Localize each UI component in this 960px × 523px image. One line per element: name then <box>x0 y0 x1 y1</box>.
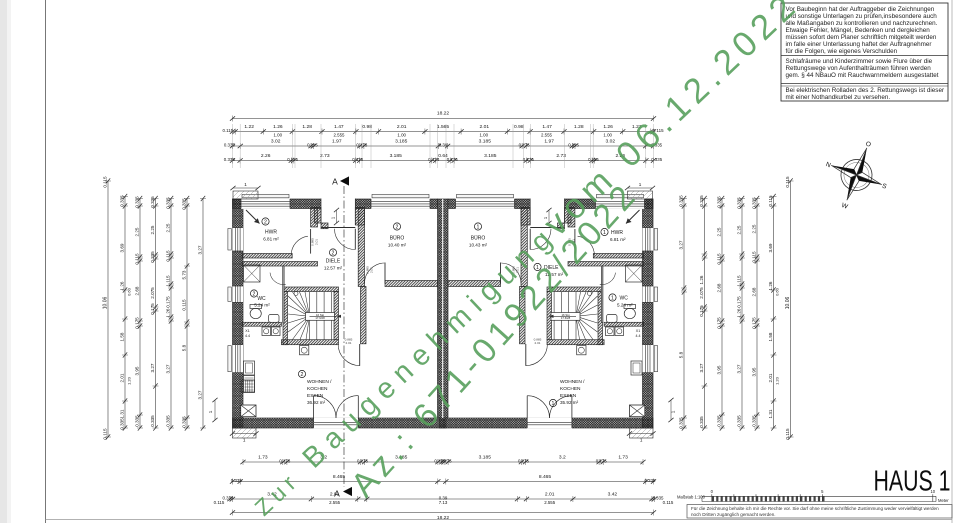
svg-text:3.27: 3.27 <box>699 363 704 372</box>
svg-text:2.25: 2.25 <box>135 227 140 236</box>
svg-text:0.115: 0.115 <box>222 128 233 133</box>
svg-text:0.115: 0.115 <box>785 428 790 440</box>
svg-text:2.075: 2.075 <box>150 287 155 299</box>
svg-text:3.185: 3.185 <box>395 139 408 145</box>
svg-text:WOHNEN /: WOHNEN / <box>560 379 585 385</box>
svg-text:8.465: 8.465 <box>539 474 552 480</box>
svg-text:3.185: 3.185 <box>484 153 497 159</box>
svg-text:2.075: 2.075 <box>699 287 704 299</box>
svg-text:HWR: HWR <box>265 230 277 236</box>
svg-text:1: 1 <box>244 182 247 187</box>
svg-text:2.01: 2.01 <box>768 373 773 382</box>
svg-text:2.01: 2.01 <box>369 267 373 273</box>
svg-text:0.60: 0.60 <box>775 287 780 296</box>
svg-text:17.6/28: 17.6/28 <box>561 316 571 320</box>
svg-text:1.26: 1.26 <box>166 308 171 317</box>
svg-text:0.115: 0.115 <box>307 143 318 148</box>
svg-text:0.98: 0.98 <box>362 124 372 130</box>
svg-text:0.175: 0.175 <box>447 157 459 162</box>
svg-text:0.335: 0.335 <box>699 195 704 207</box>
svg-text:1.58: 1.58 <box>768 332 773 341</box>
svg-text:1: 1 <box>611 296 614 302</box>
svg-text:2: 2 <box>396 225 399 231</box>
svg-text:3.95: 3.95 <box>752 367 757 376</box>
svg-text:1.97: 1.97 <box>332 139 342 145</box>
svg-text:0.335: 0.335 <box>182 416 187 428</box>
svg-text:3.95: 3.95 <box>135 366 140 375</box>
svg-text:2.555: 2.555 <box>329 500 341 505</box>
svg-text:35.92 m²: 35.92 m² <box>560 400 579 405</box>
svg-text:X1: X1 <box>245 329 249 333</box>
svg-text:0.335: 0.335 <box>752 415 757 427</box>
svg-text:4.4: 4.4 <box>636 334 641 338</box>
svg-text:3.185: 3.185 <box>390 153 403 159</box>
svg-text:1.22: 1.22 <box>244 124 254 130</box>
svg-text:2.555: 2.555 <box>541 133 553 138</box>
svg-text:2.01: 2.01 <box>545 492 555 498</box>
svg-text:0.335: 0.335 <box>224 157 236 162</box>
svg-text:0.335: 0.335 <box>231 478 243 483</box>
svg-text:Schlafräume und Kinderzimmer s: Schlafräume und Kinderzimmer sowie Flure… <box>786 58 933 65</box>
svg-text:0.335: 0.335 <box>166 197 171 209</box>
svg-text:5.8: 5.8 <box>182 344 187 351</box>
svg-text:0.175: 0.175 <box>166 296 171 308</box>
svg-text:10.43 m²: 10.43 m² <box>469 243 488 248</box>
svg-text:1.26: 1.26 <box>699 275 704 284</box>
svg-text:4.4: 4.4 <box>245 334 250 338</box>
svg-text:0.175: 0.175 <box>441 459 453 464</box>
svg-text:5.8: 5.8 <box>679 351 684 358</box>
svg-text:2.25: 2.25 <box>150 225 155 234</box>
svg-text:1.26: 1.26 <box>120 281 125 290</box>
svg-text:BÜRO: BÜRO <box>390 235 405 242</box>
svg-text:2.73: 2.73 <box>556 153 566 159</box>
svg-text:3.27: 3.27 <box>166 364 171 373</box>
svg-text:36.92 m²: 36.92 m² <box>307 400 326 405</box>
svg-text:0.115: 0.115 <box>182 299 187 311</box>
svg-text:Meter: Meter <box>938 498 949 503</box>
svg-text:A: A <box>332 177 338 187</box>
svg-text:0.335: 0.335 <box>150 196 155 208</box>
svg-text:0.175: 0.175 <box>596 459 608 464</box>
svg-text:1: 1 <box>552 401 555 407</box>
svg-text:0.175: 0.175 <box>523 157 535 162</box>
svg-text:müssen sofort dem Planer schri: müssen sofort dem Planer schriftlich mit… <box>786 34 937 41</box>
svg-text:HAUS 1: HAUS 1 <box>874 465 951 497</box>
svg-text:0.175: 0.175 <box>699 305 704 317</box>
svg-text:2.25: 2.25 <box>752 224 757 233</box>
svg-text:0.175: 0.175 <box>279 459 291 464</box>
svg-text:2.01: 2.01 <box>397 124 407 130</box>
svg-text:1.26: 1.26 <box>768 281 773 290</box>
svg-text:0.335: 0.335 <box>737 415 742 427</box>
svg-text:1: 1 <box>639 182 642 187</box>
svg-text:0.335: 0.335 <box>120 418 125 430</box>
svg-text:2: 2 <box>253 292 256 298</box>
svg-text:0.335: 0.335 <box>150 251 155 263</box>
svg-text:2.73: 2.73 <box>320 153 330 159</box>
svg-text:0.335: 0.335 <box>717 196 722 208</box>
svg-text:0.335: 0.335 <box>679 417 684 429</box>
svg-text:1: 1 <box>243 438 246 443</box>
svg-text:0.175: 0.175 <box>717 317 722 329</box>
svg-text:1.97: 1.97 <box>544 139 554 145</box>
svg-text:1.58: 1.58 <box>120 332 125 341</box>
svg-text:2.555: 2.555 <box>544 500 556 505</box>
svg-text:WOHNEN /: WOHNEN / <box>307 379 332 385</box>
svg-text:2.555: 2.555 <box>334 133 346 138</box>
svg-text:3.27: 3.27 <box>737 364 742 373</box>
svg-text:BÜRO: BÜRO <box>471 235 486 242</box>
svg-text:0.335: 0.335 <box>224 143 236 148</box>
svg-text:5.73: 5.73 <box>182 270 187 279</box>
svg-text:DIELE: DIELE <box>326 259 341 265</box>
svg-text:1.73: 1.73 <box>258 455 268 461</box>
svg-text:0.115: 0.115 <box>287 157 298 162</box>
svg-text:0.115: 0.115 <box>785 176 790 188</box>
svg-text:1.47: 1.47 <box>334 124 344 130</box>
svg-text:Maßstab 1:100: Maßstab 1:100 <box>677 495 706 500</box>
svg-text:2: 2 <box>332 251 335 257</box>
svg-text:2.01: 2.01 <box>515 267 519 273</box>
svg-text:3.27: 3.27 <box>679 240 684 249</box>
svg-text:2.01: 2.01 <box>345 341 351 345</box>
svg-text:2.01: 2.01 <box>480 124 490 130</box>
svg-text:10.06: 10.06 <box>103 297 109 310</box>
svg-text:10.40 m²: 10.40 m² <box>388 243 407 248</box>
svg-text:18.22: 18.22 <box>437 515 450 521</box>
svg-text:gem. § 44 NBauO mit Rauchwarnm: gem. § 44 NBauO mit Rauchwarnmeldern aus… <box>786 72 939 79</box>
svg-text:1.31: 1.31 <box>768 409 773 418</box>
svg-text:1.26: 1.26 <box>737 308 742 317</box>
svg-text:0.335: 0.335 <box>150 415 155 427</box>
svg-text:KOCHEN: KOCHEN <box>307 386 328 392</box>
svg-text:1.00: 1.00 <box>480 133 489 138</box>
svg-text:0.175: 0.175 <box>135 317 140 329</box>
svg-text:18.22: 18.22 <box>437 111 450 117</box>
svg-text:0.115: 0.115 <box>768 195 773 207</box>
svg-text:0.115: 0.115 <box>166 250 171 262</box>
svg-text:1.00: 1.00 <box>603 133 612 138</box>
svg-text:7.13: 7.13 <box>439 500 448 505</box>
svg-text:0.335: 0.335 <box>752 197 757 209</box>
svg-text:3.42: 3.42 <box>608 492 618 498</box>
svg-text:0.60: 0.60 <box>127 287 132 296</box>
svg-text:1.28: 1.28 <box>302 124 312 130</box>
svg-text:5.24 m²: 5.24 m² <box>617 303 633 308</box>
svg-text:1.28: 1.28 <box>574 124 584 130</box>
svg-text:und sonstige Unterlagen zu prü: und sonstige Unterlagen zu prüfen,insbes… <box>786 13 938 20</box>
svg-text:2.25: 2.25 <box>717 227 722 236</box>
svg-text:KOCHEN: KOCHEN <box>560 386 581 392</box>
svg-text:5.24 m²: 5.24 m² <box>254 303 270 308</box>
svg-text:0.335: 0.335 <box>699 416 704 428</box>
svg-text:2: 2 <box>264 220 267 226</box>
svg-text:3.2: 3.2 <box>559 455 566 461</box>
svg-text:3.185: 3.185 <box>479 455 492 461</box>
svg-text:2.25: 2.25 <box>166 223 171 232</box>
svg-text:0.335: 0.335 <box>679 195 684 207</box>
svg-text:0.335: 0.335 <box>135 415 140 427</box>
svg-text:1.00: 1.00 <box>397 133 406 138</box>
svg-text:1.26: 1.26 <box>273 124 283 130</box>
svg-text:0.335: 0.335 <box>166 415 171 427</box>
svg-text:10: 10 <box>930 489 935 494</box>
svg-text:1: 1 <box>671 410 676 413</box>
svg-text:0.115: 0.115 <box>103 428 108 440</box>
svg-text:Bei elektrischen Rolladen des: Bei elektrischen Rolladen des 2. Rettung… <box>786 87 945 94</box>
svg-text:0.335: 0.335 <box>645 478 657 483</box>
svg-text:Etwaige Fehler, Mängel, Bedenk: Etwaige Fehler, Mängel, Bedenken und der… <box>786 27 931 34</box>
svg-text:0.335: 0.335 <box>120 195 125 207</box>
svg-text:1.00: 1.00 <box>274 133 283 138</box>
svg-text:3.27: 3.27 <box>198 245 203 254</box>
svg-text:12.57 m²: 12.57 m² <box>324 266 343 271</box>
svg-text:0.115: 0.115 <box>568 143 579 148</box>
svg-text:6.81 m²: 6.81 m² <box>610 237 626 242</box>
svg-text:2.68: 2.68 <box>135 286 140 295</box>
svg-text:2.01: 2.01 <box>120 373 125 382</box>
svg-text:1: 1 <box>208 410 213 413</box>
svg-text:6.81 m²: 6.81 m² <box>263 237 279 242</box>
svg-text:0.335: 0.335 <box>717 415 722 427</box>
svg-text:0.115: 0.115 <box>663 500 674 505</box>
svg-text:0.175: 0.175 <box>737 296 742 308</box>
svg-text:0.115: 0.115 <box>135 253 140 265</box>
svg-text:3.27: 3.27 <box>198 390 203 399</box>
svg-text:3.95: 3.95 <box>717 365 722 374</box>
svg-text:X1: X1 <box>636 329 640 333</box>
svg-text:0.115: 0.115 <box>717 253 722 265</box>
svg-text:0.175: 0.175 <box>150 303 155 315</box>
svg-text:2.01: 2.01 <box>534 341 540 345</box>
svg-text:WC: WC <box>620 296 629 302</box>
svg-text:1.115: 1.115 <box>737 275 742 287</box>
svg-text:1: 1 <box>477 225 480 231</box>
svg-text:2.25: 2.25 <box>737 225 742 234</box>
svg-text:0.335: 0.335 <box>182 198 187 210</box>
svg-text:10.06: 10.06 <box>785 297 791 310</box>
svg-text:0.335: 0.335 <box>135 196 140 208</box>
svg-text:1.26: 1.26 <box>603 124 613 130</box>
svg-text:1.565: 1.565 <box>437 124 450 130</box>
svg-text:noch Dritten zugänglich gemach: noch Dritten zugänglich gemacht werden. <box>691 512 776 517</box>
svg-text:1.31: 1.31 <box>120 409 125 418</box>
svg-text:3.69: 3.69 <box>120 243 125 252</box>
svg-text:0.115: 0.115 <box>214 500 225 505</box>
svg-text:0.115: 0.115 <box>103 176 108 188</box>
svg-text:mit einer Nothandkurbel zu ver: mit einer Nothandkurbel zu versehen. <box>786 94 891 101</box>
svg-text:0.98: 0.98 <box>514 124 524 130</box>
svg-text:1: 1 <box>640 438 643 443</box>
svg-text:WC: WC <box>257 296 266 302</box>
svg-text:1.115: 1.115 <box>166 275 171 287</box>
svg-text:3.27: 3.27 <box>150 363 155 372</box>
svg-text:1.73: 1.73 <box>618 455 628 461</box>
svg-text:0.335: 0.335 <box>651 157 663 162</box>
svg-text:0.115: 0.115 <box>752 251 757 263</box>
svg-text:2.01: 2.01 <box>315 239 319 245</box>
svg-text:2.26: 2.26 <box>261 153 271 159</box>
svg-text:3.69: 3.69 <box>768 243 773 252</box>
svg-text:0.39: 0.39 <box>439 143 448 148</box>
svg-text:3.185: 3.185 <box>479 139 492 145</box>
svg-text:ESSEN: ESSEN <box>560 393 577 399</box>
svg-text:0.175: 0.175 <box>519 143 531 148</box>
svg-text:3.02: 3.02 <box>271 139 281 145</box>
svg-text:1.20: 1.20 <box>775 376 780 385</box>
svg-text:2.68: 2.68 <box>717 283 722 292</box>
svg-text:2.68: 2.68 <box>752 287 757 296</box>
svg-text:Für die Zeichnung behalte ich: Für die Zeichnung behalte ich mir die Re… <box>691 506 939 511</box>
svg-text:1.20: 1.20 <box>127 376 132 385</box>
svg-text:2.01: 2.01 <box>330 492 340 498</box>
svg-text:ESSEN: ESSEN <box>307 393 324 399</box>
svg-text:0.175: 0.175 <box>752 317 757 329</box>
svg-text:für die Folgen, wie eigenes Ve: für die Folgen, wie eigenes Verschulden <box>786 48 898 55</box>
svg-text:17.6/28: 17.6/28 <box>315 316 325 320</box>
svg-text:1.47: 1.47 <box>542 124 552 130</box>
svg-text:2: 2 <box>301 372 304 378</box>
svg-text:0.175: 0.175 <box>518 459 530 464</box>
svg-text:0.335: 0.335 <box>737 197 742 209</box>
